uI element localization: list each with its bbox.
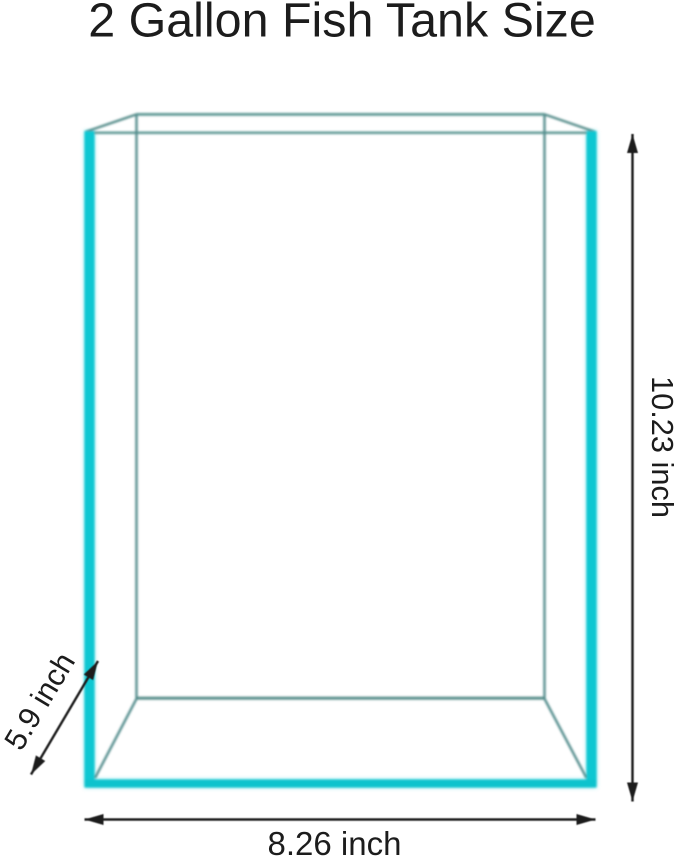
svg-text:2 Gallon Fish Tank Size: 2 Gallon Fish Tank Size (88, 0, 595, 48)
svg-text:10.23 inch: 10.23 inch (645, 376, 679, 518)
svg-text:8.26 inch: 8.26 inch (268, 825, 402, 858)
svg-text:5.9 inch: 5.9 inch (0, 647, 82, 756)
